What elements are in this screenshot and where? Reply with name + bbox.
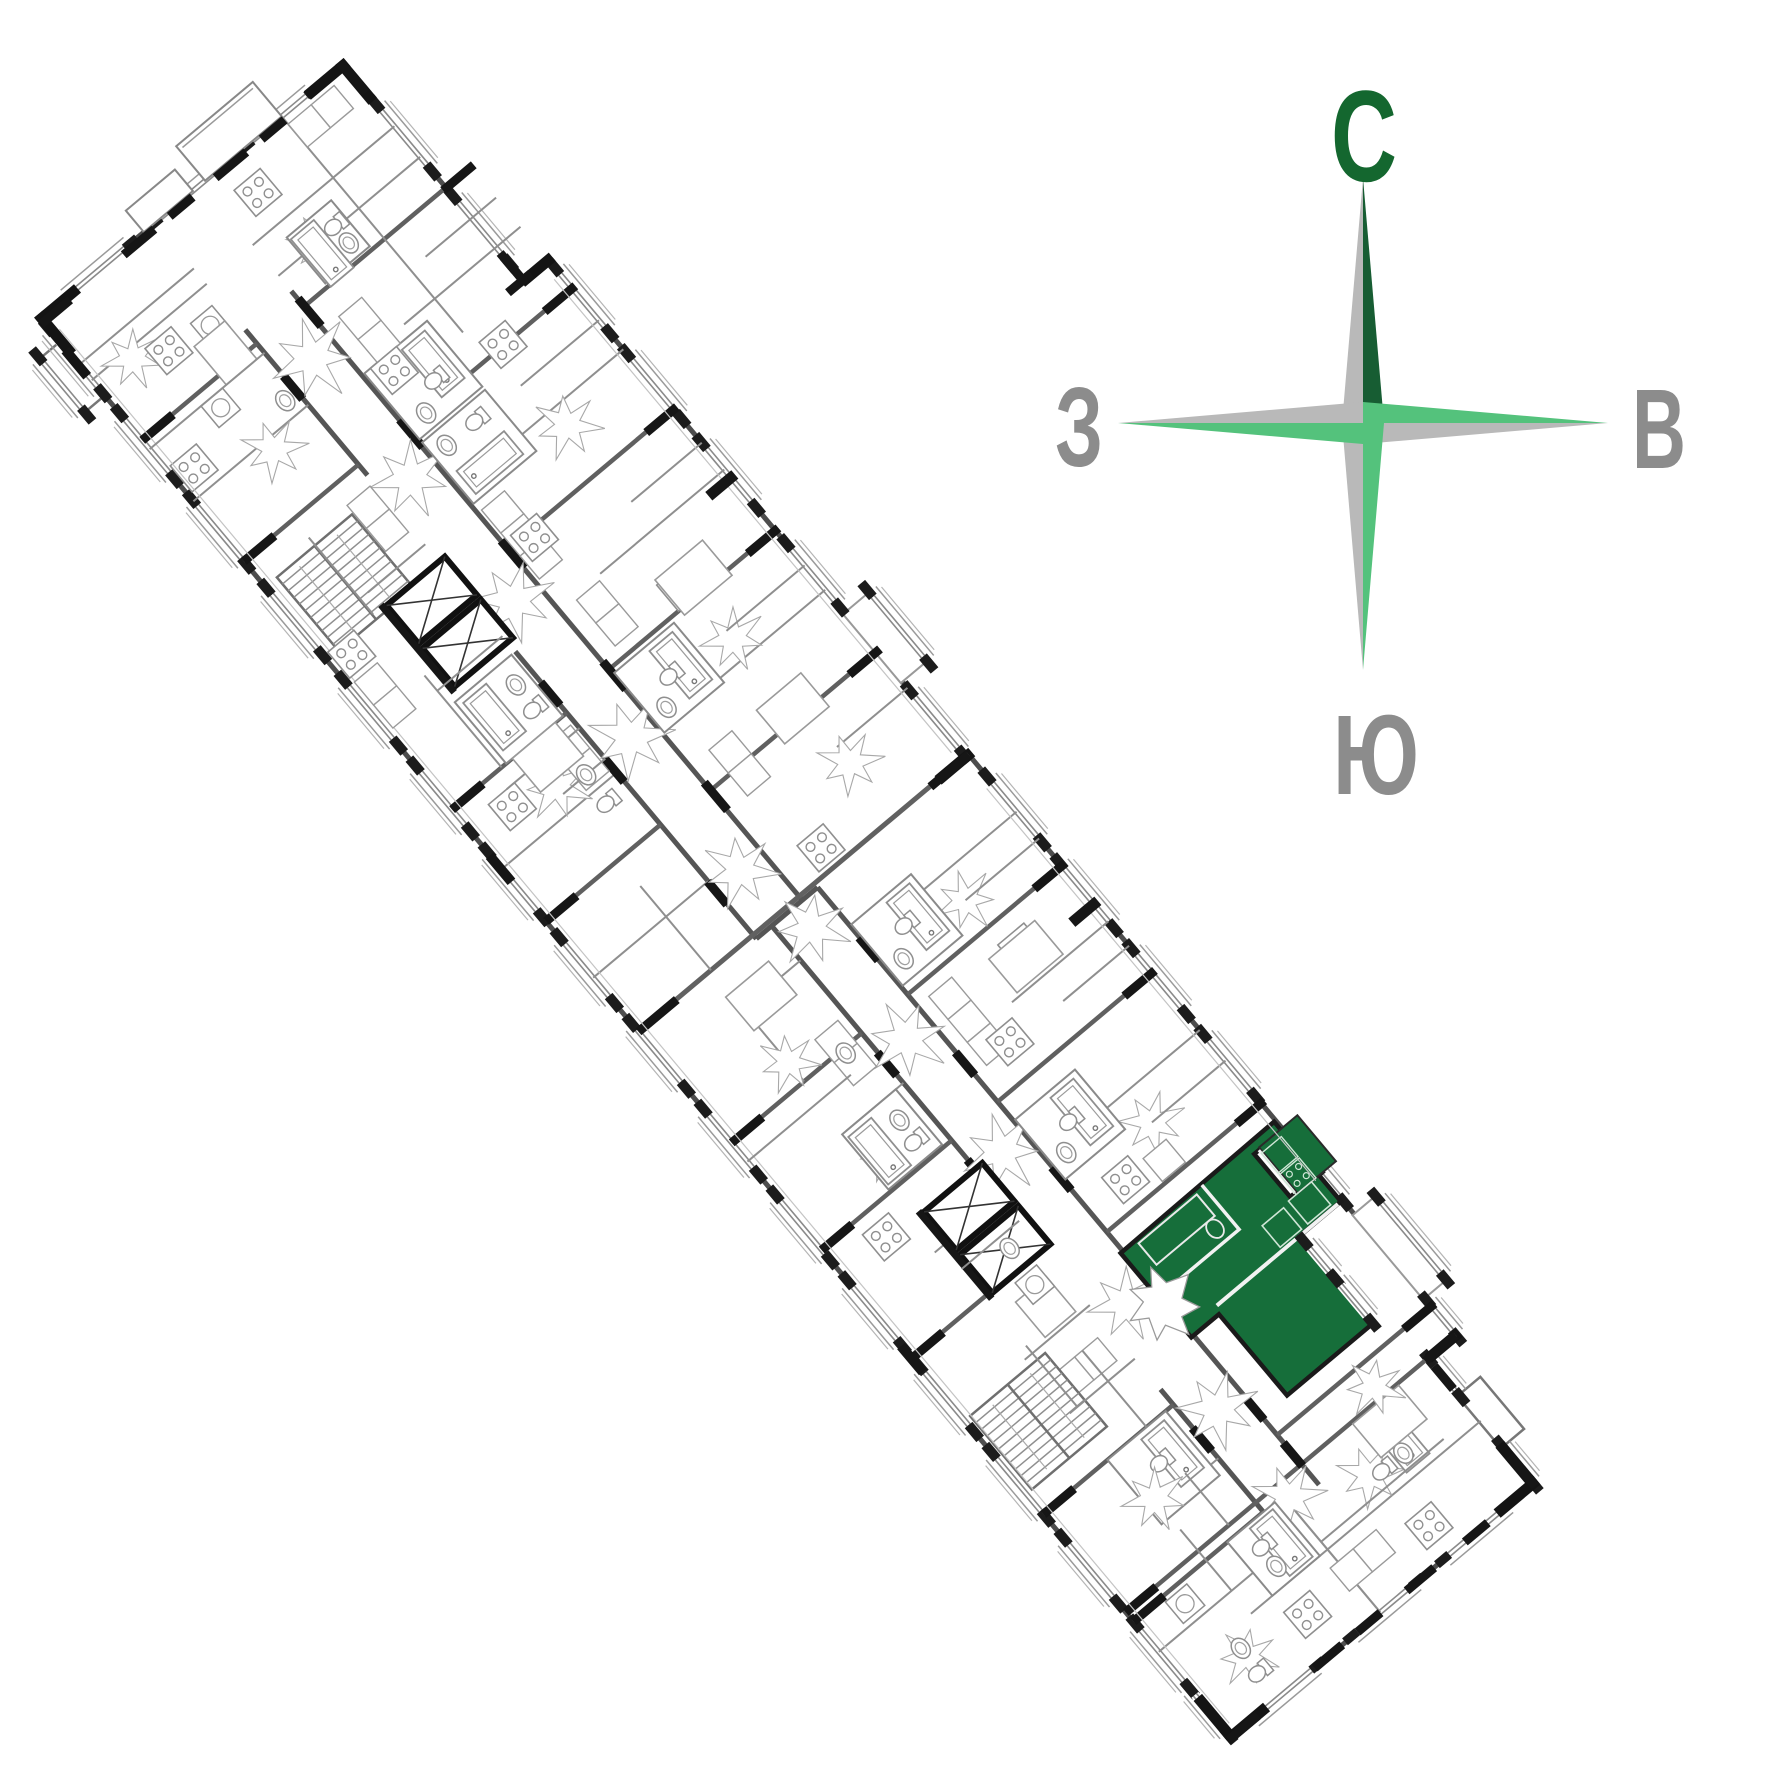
- svg-text:В: В: [1632, 366, 1686, 492]
- svg-text:С: С: [1331, 63, 1397, 209]
- svg-text:Ю: Ю: [1333, 692, 1419, 818]
- svg-text:З: З: [1055, 364, 1103, 490]
